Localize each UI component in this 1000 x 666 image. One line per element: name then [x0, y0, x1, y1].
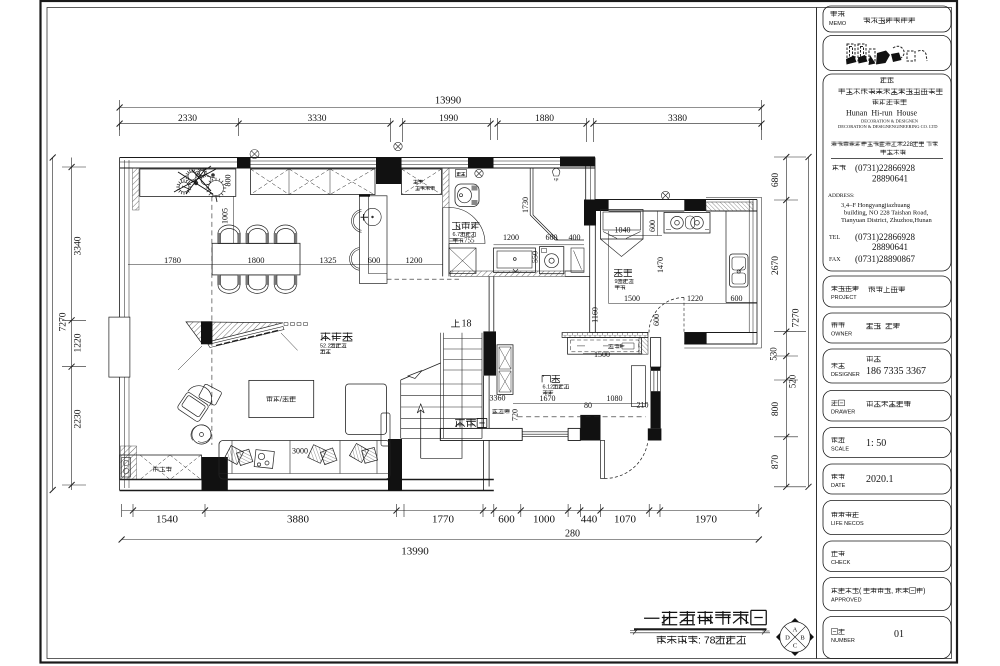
svg-text:SCALE: SCALE [831, 447, 849, 453]
svg-text:600: 600 [731, 294, 743, 303]
svg-text:1: 50: 1: 50 [866, 438, 886, 449]
svg-text:600: 600 [648, 220, 657, 232]
svg-text:Tianyuan District, Zhuzhou,Hun: Tianyuan District, Zhuzhou,Hunan [841, 217, 932, 224]
svg-text:755: 755 [464, 237, 475, 245]
svg-text:1200: 1200 [503, 233, 519, 242]
svg-text:6.7: 6.7 [453, 232, 461, 238]
svg-text:2330: 2330 [178, 114, 197, 124]
svg-text:1500: 1500 [594, 350, 610, 359]
svg-text:OWNER: OWNER [831, 332, 852, 338]
svg-text:1080: 1080 [607, 394, 623, 403]
svg-text:440: 440 [581, 514, 598, 526]
svg-text:(0731)22866928: (0731)22866928 [855, 163, 915, 173]
svg-text:DESIGNER: DESIGNER [831, 372, 860, 378]
svg-text:400: 400 [569, 233, 581, 242]
svg-text:(0731)28890867: (0731)28890867 [855, 254, 915, 264]
svg-text:TEL: TEL [829, 235, 840, 241]
svg-text:1200: 1200 [406, 255, 423, 265]
svg-text:1990: 1990 [439, 114, 458, 124]
svg-text:9: 9 [615, 279, 618, 285]
svg-text:/: / [280, 397, 282, 404]
svg-text:1000: 1000 [533, 514, 556, 526]
svg-text:A: A [793, 627, 798, 634]
svg-text:13990: 13990 [401, 546, 429, 558]
svg-text:3,4–F Hongyangjiazhuang: 3,4–F Hongyangjiazhuang [841, 202, 911, 209]
svg-text:6.12: 6.12 [543, 385, 554, 391]
svg-text:DECORATION & DESIGNENGINEERING: DECORATION & DESIGNENGINEERING CO. LTD [838, 124, 938, 129]
svg-text:1070: 1070 [614, 514, 637, 526]
svg-text:1540: 1540 [156, 514, 179, 526]
svg-text:7270: 7270 [59, 312, 69, 331]
svg-text:600: 600 [546, 233, 558, 242]
svg-text:600: 600 [652, 314, 661, 326]
svg-text:1220: 1220 [74, 333, 84, 352]
svg-text:CHECK: CHECK [831, 560, 851, 566]
svg-text:28890641: 28890641 [872, 174, 908, 184]
svg-text:: 78: : 78 [698, 635, 716, 647]
svg-text:186 7335 3367: 186 7335 3367 [866, 366, 926, 377]
svg-text:3330: 3330 [308, 114, 327, 124]
svg-text:1770: 1770 [432, 514, 455, 526]
svg-text:3380: 3380 [668, 114, 687, 124]
svg-text:28890641: 28890641 [872, 242, 908, 252]
svg-text:(0731)22866928: (0731)22866928 [855, 232, 915, 242]
svg-text:520: 520 [788, 374, 798, 388]
svg-text:D: D [785, 635, 790, 642]
svg-text:NUMBER: NUMBER [831, 638, 855, 644]
svg-text:52.2: 52.2 [320, 344, 331, 350]
svg-text:1730: 1730 [521, 197, 530, 213]
svg-text:DECORATION & DESIGNEN: DECORATION & DESIGNEN [861, 119, 919, 124]
svg-text:DATE: DATE [831, 483, 846, 489]
svg-text:7270: 7270 [792, 308, 802, 327]
svg-text:LIFE NECOS: LIFE NECOS [831, 521, 864, 527]
svg-text:800: 800 [224, 175, 233, 187]
svg-text:1780: 1780 [164, 255, 181, 265]
svg-text:building, NO 228 Taishan Road,: building, NO 228 Taishan Road, [844, 210, 929, 217]
svg-text:3000: 3000 [292, 447, 308, 456]
svg-text:3360: 3360 [490, 394, 506, 403]
svg-text:1040: 1040 [615, 226, 631, 235]
svg-text:228: 228 [903, 142, 914, 148]
svg-text:1220: 1220 [687, 294, 703, 303]
svg-text:PROJECT: PROJECT [831, 295, 857, 301]
svg-text:600: 600 [368, 255, 381, 265]
svg-text:3880: 3880 [287, 514, 310, 526]
svg-text:13990: 13990 [435, 96, 461, 107]
svg-text:280: 280 [565, 529, 580, 540]
svg-text:01: 01 [894, 629, 904, 640]
svg-text:800: 800 [771, 402, 781, 417]
svg-text:2230: 2230 [74, 409, 84, 428]
svg-text:ADDRESS:: ADDRESS: [828, 193, 855, 199]
svg-text:DRAWER: DRAWER [831, 410, 855, 416]
svg-text:1800: 1800 [248, 255, 265, 265]
svg-text:1160: 1160 [591, 307, 600, 323]
svg-text:1880: 1880 [535, 114, 554, 124]
svg-text:1500: 1500 [624, 294, 640, 303]
svg-text:18: 18 [462, 319, 472, 330]
svg-text:530: 530 [769, 347, 779, 361]
svg-text:600: 600 [498, 514, 515, 526]
svg-text:): ) [923, 588, 925, 595]
svg-text:720: 720 [511, 409, 520, 421]
svg-text:MEMO: MEMO [829, 21, 847, 27]
svg-text:FAX: FAX [829, 257, 841, 263]
svg-text:1325: 1325 [320, 255, 337, 265]
svg-text:,: , [891, 588, 893, 595]
svg-text:3340: 3340 [74, 236, 84, 255]
svg-text:550: 550 [531, 251, 540, 263]
svg-text:1970: 1970 [695, 514, 718, 526]
svg-text:APPROVED: APPROVED [831, 598, 862, 604]
svg-text:2670: 2670 [771, 256, 781, 275]
svg-text:210: 210 [637, 401, 649, 410]
svg-text:870: 870 [771, 455, 781, 470]
svg-text:80: 80 [584, 401, 592, 410]
svg-text:1470: 1470 [656, 257, 665, 273]
svg-text:1005: 1005 [221, 208, 230, 224]
svg-text:Hunan Hi-run House: Hunan Hi-run House [846, 109, 918, 118]
svg-text:2020.1: 2020.1 [866, 474, 894, 485]
svg-text:680: 680 [771, 173, 781, 188]
svg-text:C: C [793, 643, 797, 650]
svg-text:B: B [800, 635, 805, 642]
svg-text:1670: 1670 [540, 394, 556, 403]
